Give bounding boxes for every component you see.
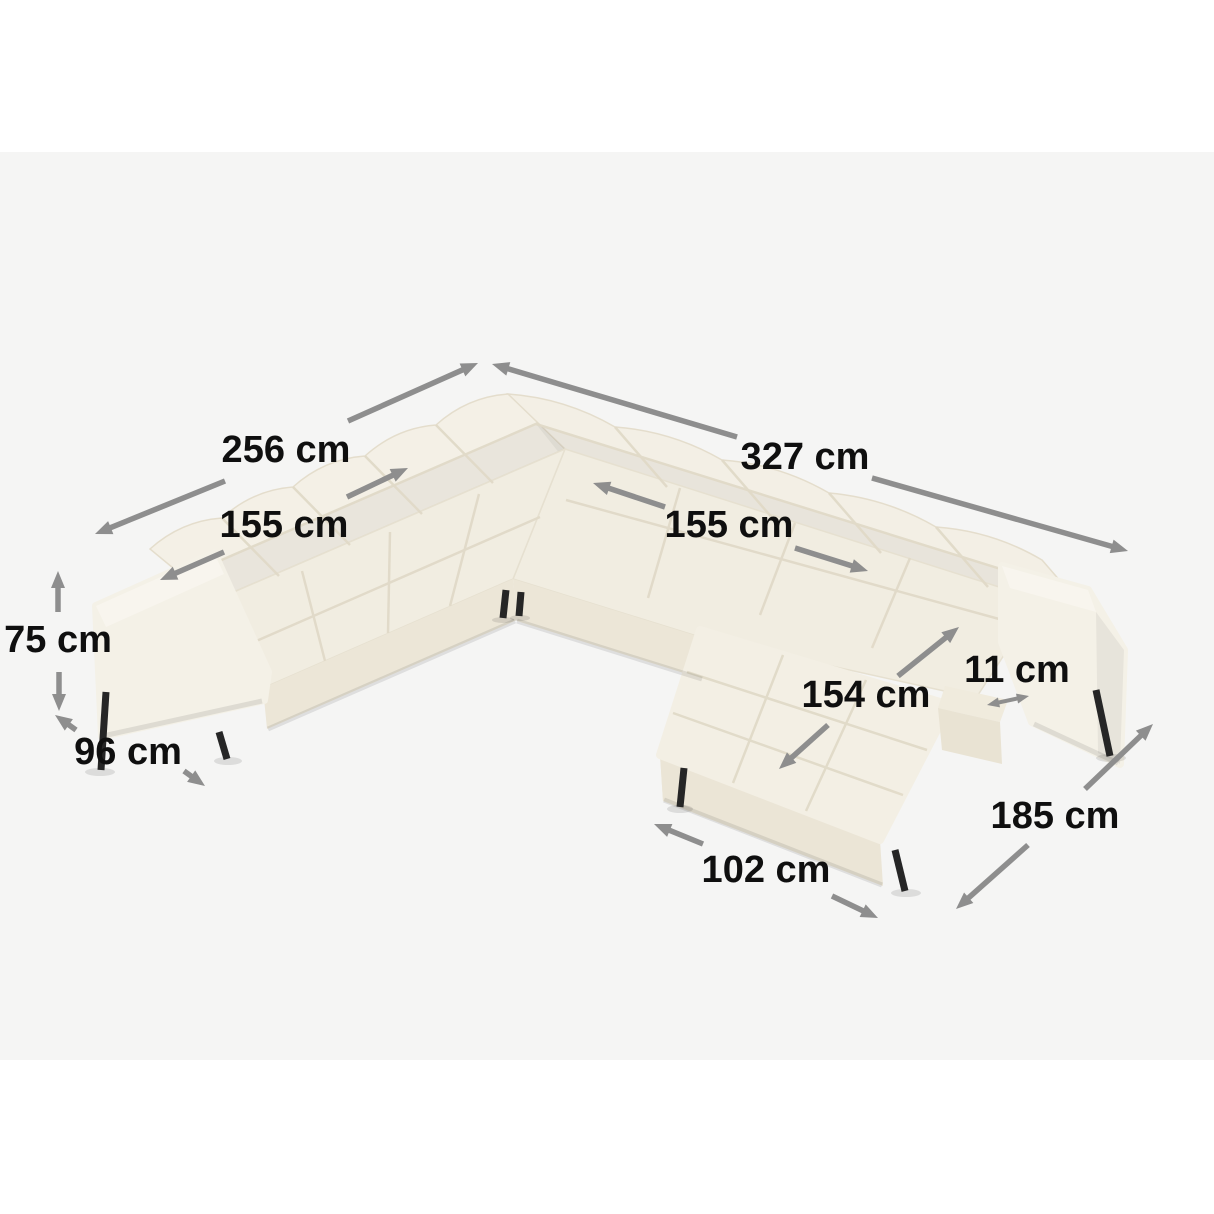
dimension-label-right-width: 327 cm [741, 438, 870, 476]
dimension-arrow-185-b [956, 845, 1028, 909]
dimension-arrow-96-b [184, 770, 205, 786]
dimension-label-depth: 96 cm [74, 733, 182, 771]
product-dimension-diagram: 256 cm 327 cm 155 cm 155 cm 75 cm 96 cm … [0, 0, 1214, 1214]
dimension-arrow-75-b [52, 672, 66, 711]
corner-leg-a [503, 590, 506, 618]
sofa-illustration [0, 0, 1214, 1214]
dimension-arrow-102-b [832, 896, 878, 918]
dimension-arrow-102-a [654, 824, 703, 844]
dimension-arrow-96-a [55, 715, 76, 731]
left-arm-inner-leg [219, 732, 227, 759]
dimension-label-left-backrest: 155 cm [220, 506, 349, 544]
chaise-right-leg [895, 850, 905, 891]
dimension-label-chaise-width: 102 cm [702, 851, 831, 889]
chaise-front-leg [680, 768, 684, 807]
dimension-arrow-75-a [51, 571, 65, 612]
dimension-label-chaise-length: 154 cm [802, 676, 931, 714]
corner-leg-b [519, 592, 521, 616]
dimension-label-height: 75 cm [4, 621, 112, 659]
dimension-label-armrest: 11 cm [964, 651, 1070, 689]
dimension-label-chaise-outer: 185 cm [991, 797, 1120, 835]
dimension-label-left-width: 256 cm [222, 431, 351, 469]
dimension-label-right-backrest: 155 cm [665, 506, 794, 544]
